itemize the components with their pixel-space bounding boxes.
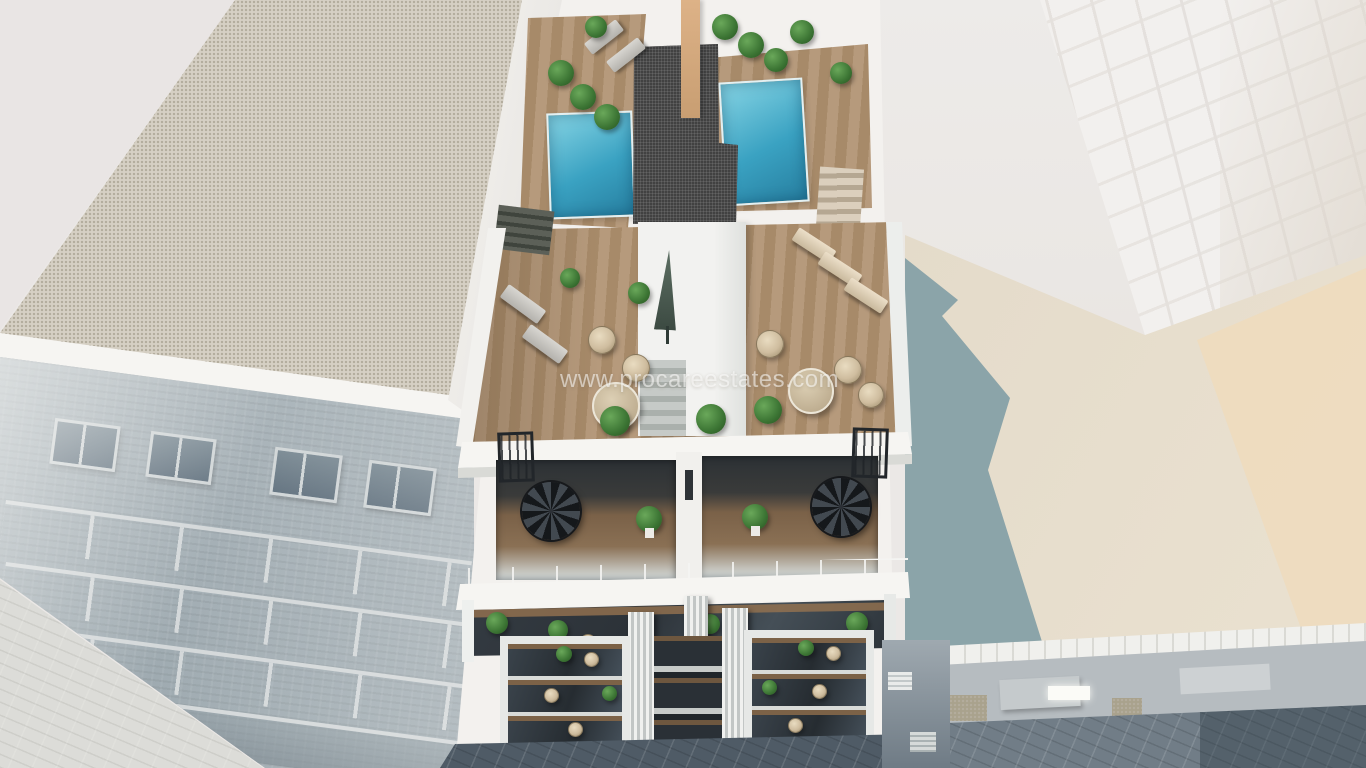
neighbor-facade-right [882, 640, 950, 768]
swimming-pool-left [546, 111, 636, 220]
plant [754, 396, 782, 424]
plant [790, 20, 814, 44]
rattan-chair [588, 326, 616, 354]
plant [602, 686, 617, 701]
balcony-chair [826, 646, 841, 661]
plant [548, 60, 574, 86]
stair-railing-cage [851, 427, 889, 478]
roof-block [1179, 664, 1270, 695]
plant [570, 84, 596, 110]
balcony-chair [544, 688, 559, 703]
plant [486, 612, 508, 634]
spiral-staircase [522, 482, 580, 540]
rattan-chair [756, 330, 784, 358]
stair-railing-cage [497, 431, 535, 482]
plant-pot [645, 528, 654, 538]
plant [585, 16, 607, 38]
tan-wall [681, 0, 700, 118]
plant [738, 32, 764, 58]
plant [600, 406, 630, 436]
plant-pot [751, 526, 760, 536]
window-blinds [888, 672, 912, 690]
plant [798, 640, 814, 656]
plant [764, 48, 788, 72]
plant [830, 62, 852, 84]
center-window [685, 470, 693, 500]
plant [628, 282, 650, 304]
plant [696, 404, 726, 434]
balcony-chair [568, 722, 583, 737]
watermark-text: www.procareestates.com [560, 366, 839, 394]
plant [712, 14, 738, 40]
umbrella-pole [666, 326, 669, 344]
balcony-chair [788, 718, 803, 733]
balcony-chair [584, 652, 599, 667]
duplex-center-wall [676, 452, 702, 582]
skylight [1048, 686, 1090, 700]
fluted-pilaster [628, 612, 654, 752]
plant [560, 268, 580, 288]
end-pier [462, 600, 474, 662]
plant [762, 680, 777, 695]
rattan-chair [858, 382, 884, 408]
window-blinds [910, 732, 936, 752]
gravel-patch [1112, 698, 1142, 716]
plant [556, 646, 572, 662]
spiral-staircase [812, 478, 870, 536]
architectural-render: www.procareestates.com [0, 0, 1366, 768]
plant [594, 104, 620, 130]
roof-stairs [816, 167, 864, 230]
balcony-chair [812, 684, 827, 699]
